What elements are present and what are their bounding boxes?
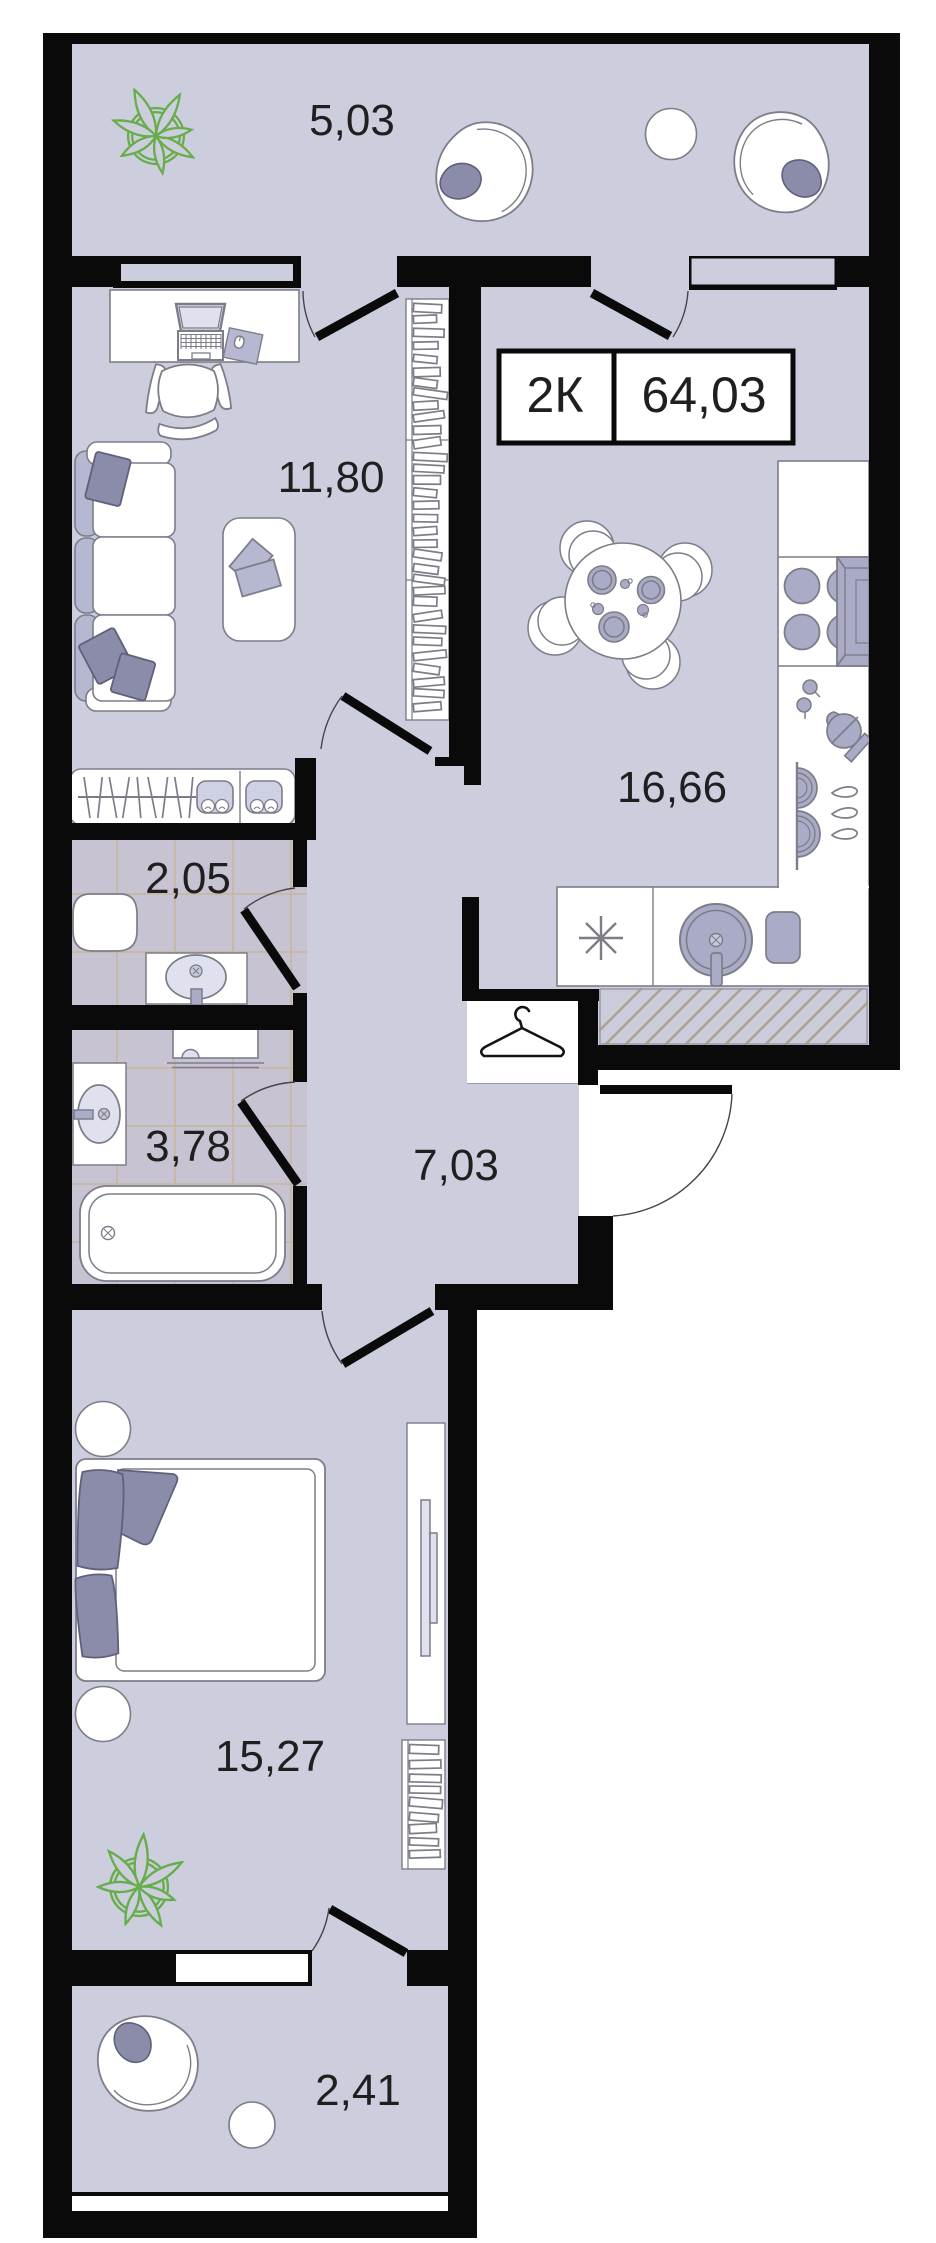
svg-text:2,05: 2,05 (145, 854, 231, 903)
svg-text:16,66: 16,66 (617, 763, 727, 812)
svg-text:5,03: 5,03 (309, 96, 395, 145)
svg-text:15,27: 15,27 (215, 1732, 325, 1781)
svg-text:3,78: 3,78 (145, 1122, 231, 1171)
svg-text:2К: 2К (527, 367, 584, 423)
svg-text:11,80: 11,80 (278, 453, 385, 502)
svg-text:7,03: 7,03 (413, 1141, 499, 1190)
svg-text:2,41: 2,41 (315, 2066, 401, 2115)
svg-text:64,03: 64,03 (641, 367, 766, 423)
